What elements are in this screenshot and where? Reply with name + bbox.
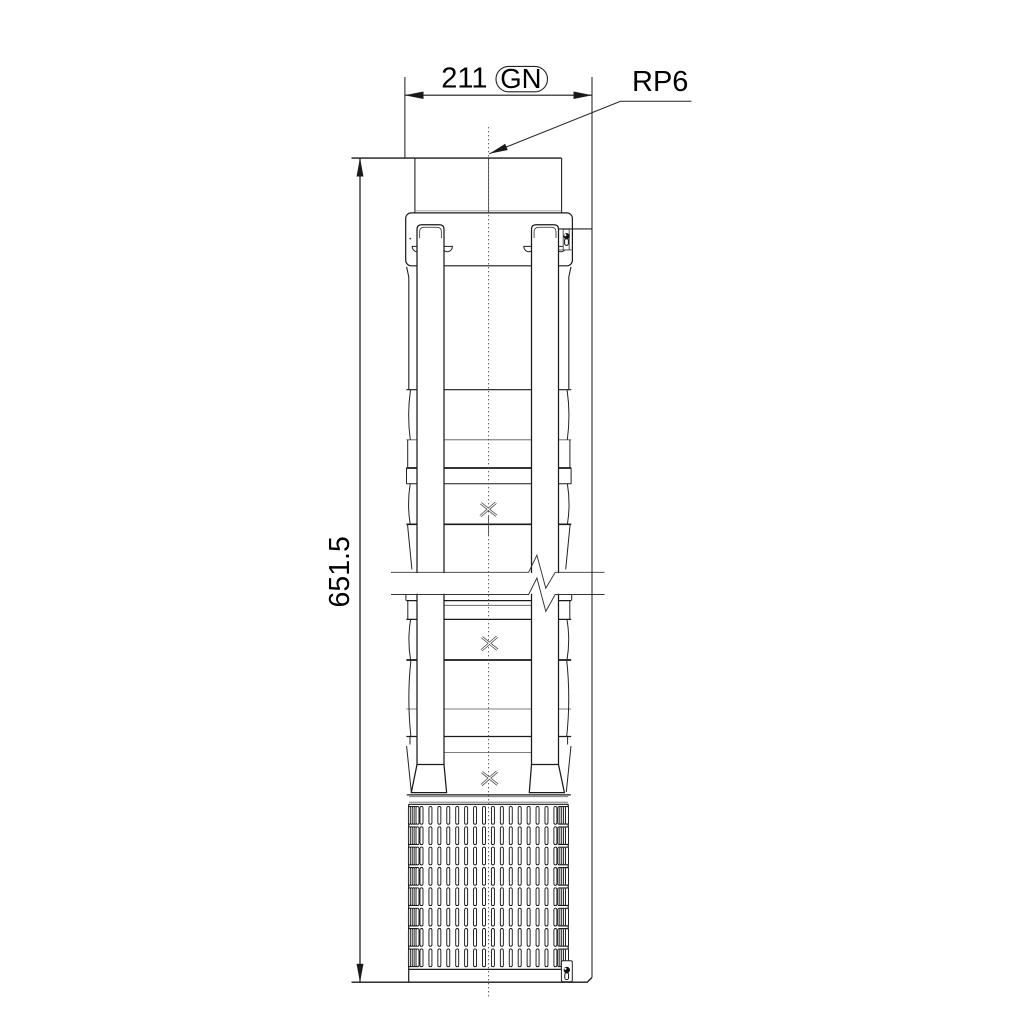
svg-text:651.5: 651.5	[324, 536, 356, 607]
svg-text:211: 211	[441, 63, 487, 95]
svg-text:RP6: RP6	[632, 66, 688, 98]
svg-text:GN: GN	[500, 63, 541, 94]
